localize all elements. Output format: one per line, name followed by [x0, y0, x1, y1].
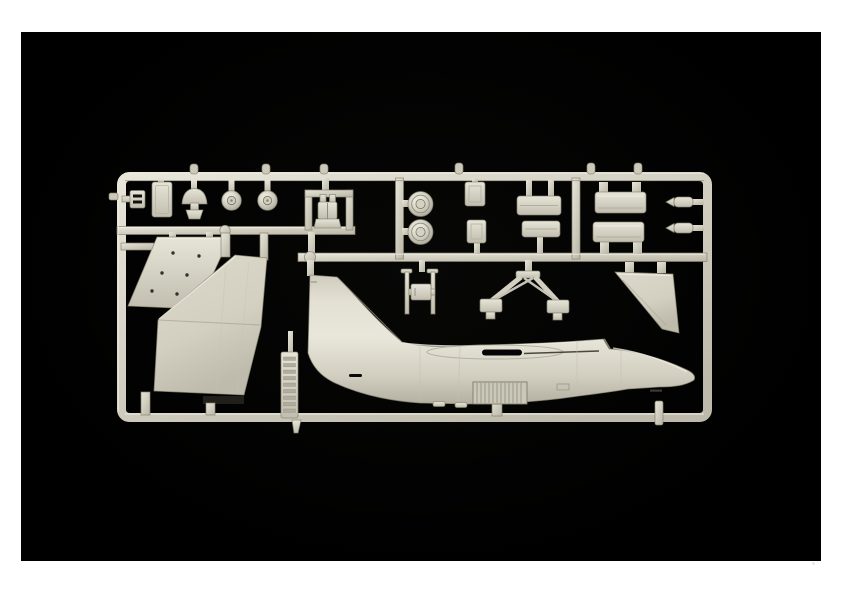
pylon-2 [593, 222, 644, 254]
airbrake-door-2 [522, 221, 560, 254]
cross-actuator-part [401, 260, 438, 314]
gear-brace-part [480, 260, 569, 320]
small-wheel-1 [222, 180, 242, 210]
main-wheel-1 [402, 192, 433, 217]
rudder-fin-part [615, 262, 679, 333]
pylon-1 [595, 182, 646, 213]
sprue-photo [21, 32, 821, 561]
domed-part [182, 180, 207, 219]
probe-1 [666, 197, 704, 207]
door-part-1 [465, 178, 485, 206]
sprue-illustration [21, 32, 821, 561]
door-part-2 [467, 220, 486, 254]
probe-2 [666, 223, 704, 233]
photo-page: { "scene": { "type": "photograph", "desc… [0, 0, 842, 595]
ejection-seat-part [305, 178, 353, 230]
small-wheel-2 [258, 180, 278, 210]
blanking-plate-part [152, 178, 172, 217]
dust-speck [812, 562, 815, 565]
main-wheel-2 [402, 220, 433, 245]
airbrake-door-1 [517, 180, 561, 215]
